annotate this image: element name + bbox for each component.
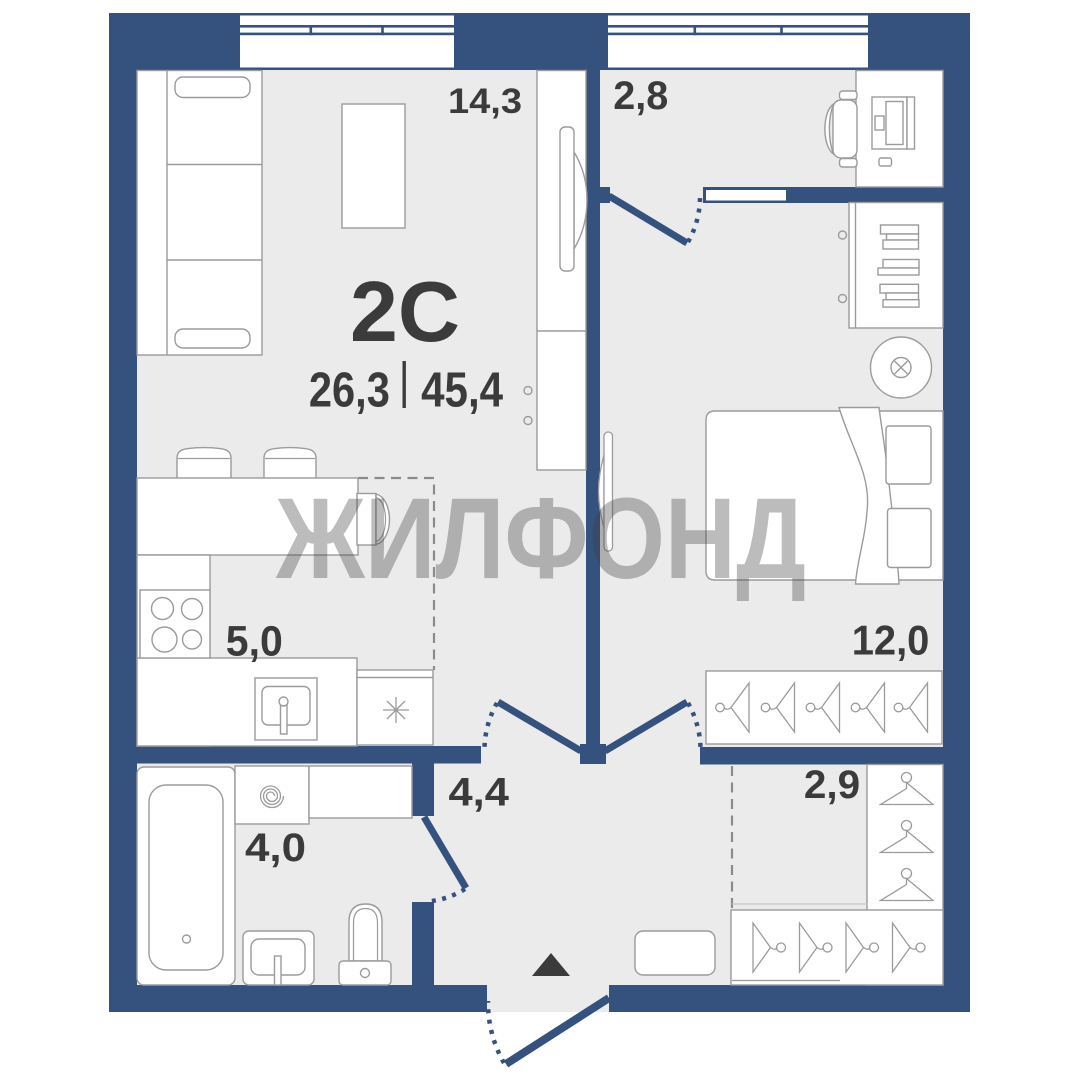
svg-text:5,0: 5,0 [226, 617, 283, 665]
svg-text:ЖИЛФОНД: ЖИЛФОНД [275, 475, 806, 603]
svg-text:2,8: 2,8 [613, 74, 668, 118]
svg-text:2С: 2С [350, 265, 460, 360]
svg-text:45,4: 45,4 [421, 364, 503, 418]
svg-text:4,4: 4,4 [449, 770, 510, 814]
svg-text:2,9: 2,9 [804, 763, 860, 807]
svg-text:4,0: 4,0 [245, 826, 306, 870]
svg-text:26,3: 26,3 [309, 364, 390, 418]
svg-text:14,3: 14,3 [448, 82, 522, 121]
svg-text:12,0: 12,0 [852, 617, 930, 664]
